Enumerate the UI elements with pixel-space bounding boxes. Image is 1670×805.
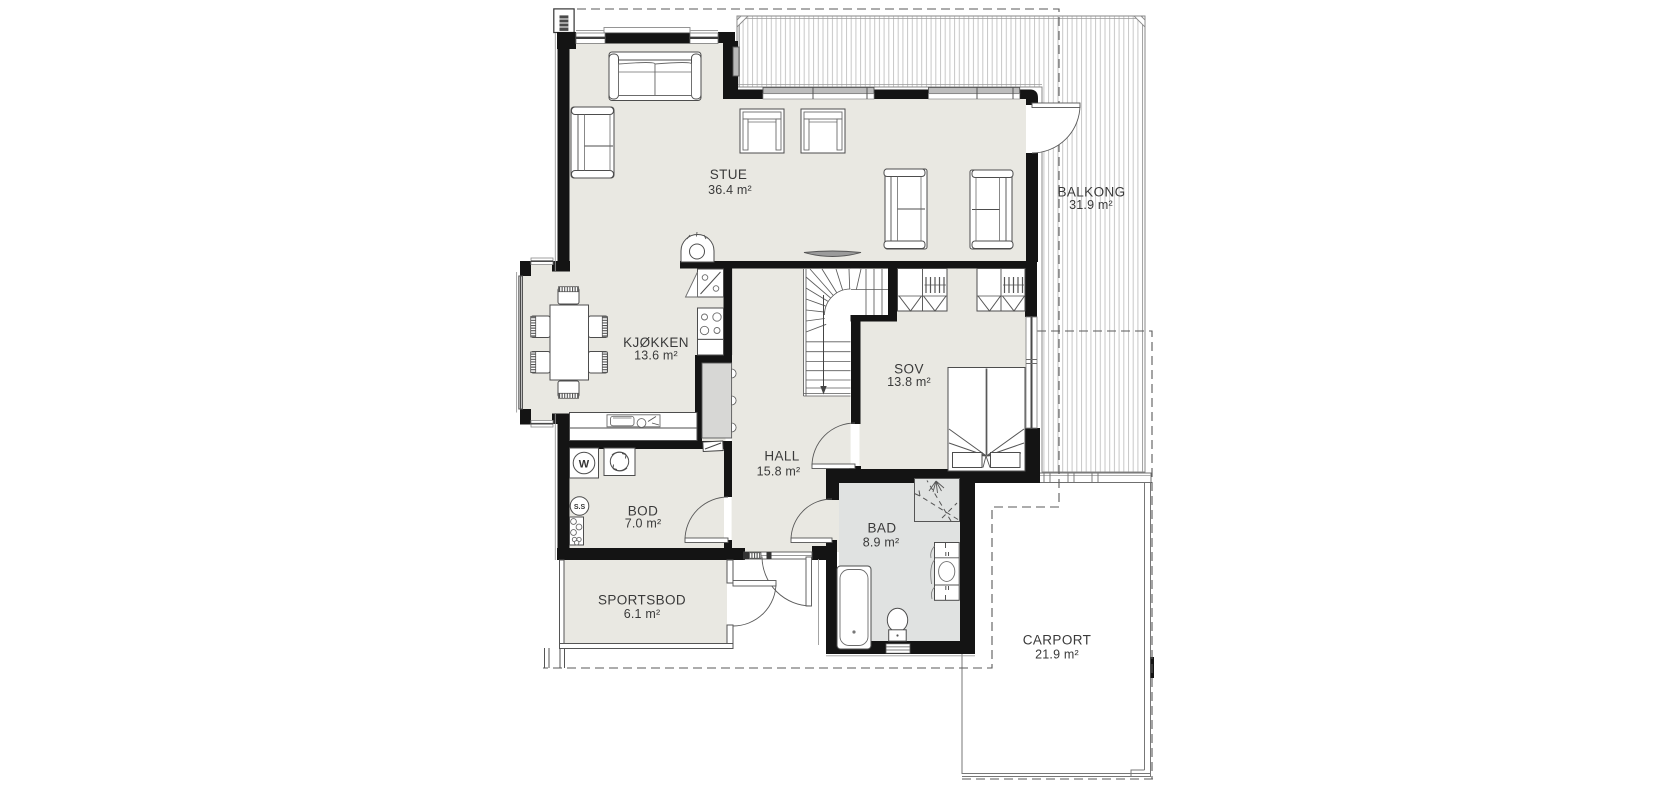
svg-text:SPORTSBOD: SPORTSBOD [598, 593, 686, 608]
svg-text:BAD: BAD [868, 521, 897, 536]
svg-text:STUE: STUE [710, 167, 748, 182]
svg-text:13.6 m²: 13.6 m² [634, 349, 678, 363]
svg-text:8.9 m²: 8.9 m² [863, 536, 900, 550]
svg-text:15.8 m²: 15.8 m² [757, 465, 801, 479]
svg-text:21.9 m²: 21.9 m² [1035, 648, 1079, 662]
svg-text:36.4 m²: 36.4 m² [708, 183, 752, 197]
svg-text:7.0 m²: 7.0 m² [625, 517, 662, 531]
svg-text:W: W [579, 459, 590, 471]
svg-text:S.S: S.S [574, 504, 586, 511]
svg-text:6.1 m²: 6.1 m² [624, 607, 661, 621]
svg-text:CARPORT: CARPORT [1023, 633, 1092, 648]
svg-text:13.8 m²: 13.8 m² [887, 375, 931, 389]
svg-text:31.9 m²: 31.9 m² [1069, 198, 1113, 212]
svg-text:HALL: HALL [764, 449, 799, 464]
